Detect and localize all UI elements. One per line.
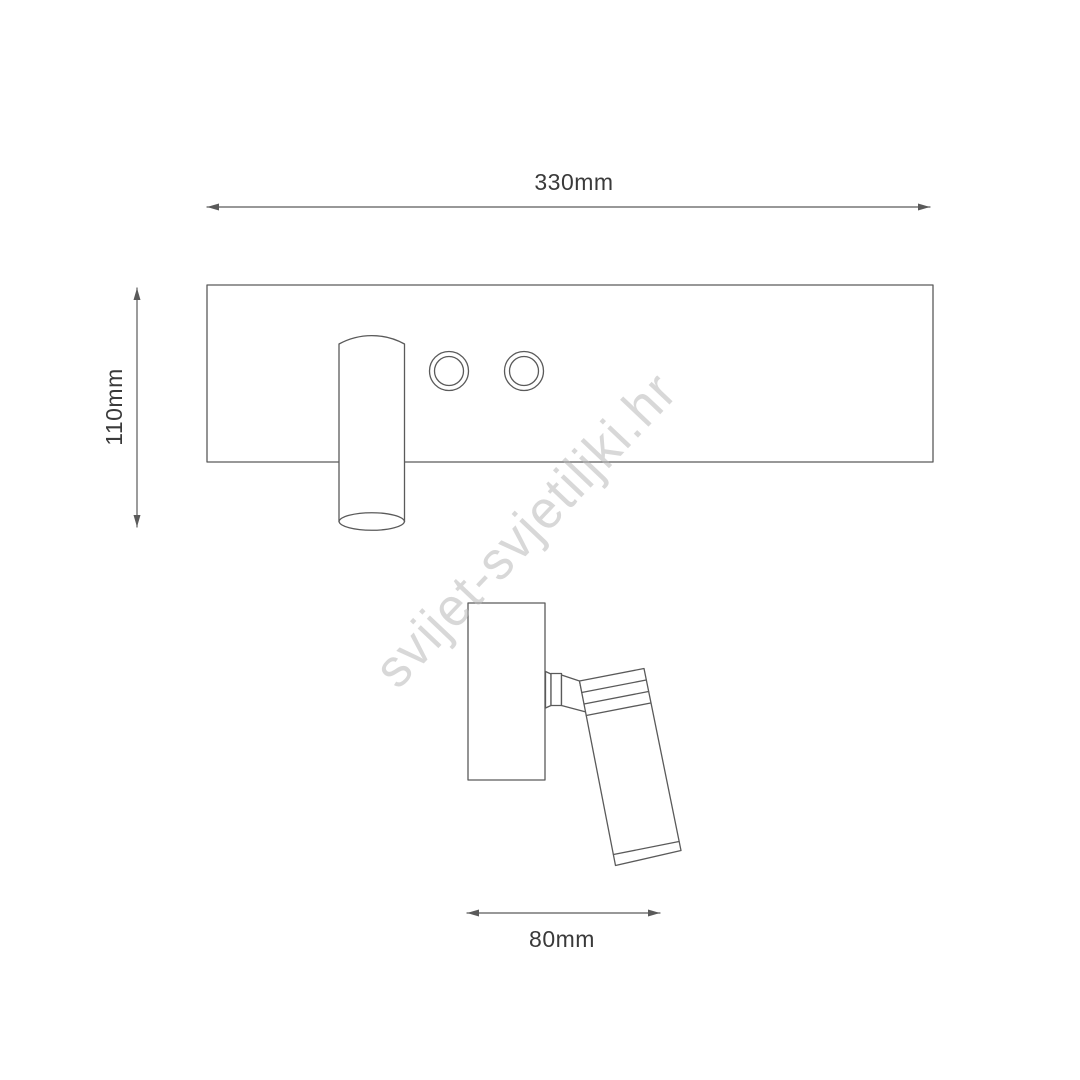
- width-dimension-label: 330mm: [534, 169, 613, 195]
- switch-left-outer-ring: [430, 352, 469, 391]
- depth-arrow-left-icon: [467, 910, 479, 917]
- reading-spot-cylinder: [339, 336, 405, 531]
- height-arrow-down-icon: [134, 515, 141, 527]
- depth-dimension-label: 80mm: [529, 926, 595, 952]
- faceplate-front: [207, 285, 933, 462]
- height-dimension-label: 110mm: [101, 368, 127, 446]
- switch-right-outer-ring: [505, 352, 544, 391]
- pivot-block: [551, 674, 562, 706]
- faceplate-side: [468, 603, 545, 780]
- spot-head: [580, 669, 682, 866]
- side-view: [468, 603, 681, 866]
- technical-drawing-page: 330mm 110mm 80mm svijet-svjetiljki.hr: [0, 0, 1080, 1080]
- height-arrow-up-icon: [134, 288, 141, 300]
- width-arrow-right-icon: [918, 204, 930, 211]
- mount-flange: [546, 672, 552, 709]
- width-arrow-left-icon: [207, 204, 219, 211]
- depth-arrow-right-icon: [648, 910, 660, 917]
- technical-drawing: 330mm 110mm 80mm svijet-svjetiljki.hr: [0, 0, 1080, 1080]
